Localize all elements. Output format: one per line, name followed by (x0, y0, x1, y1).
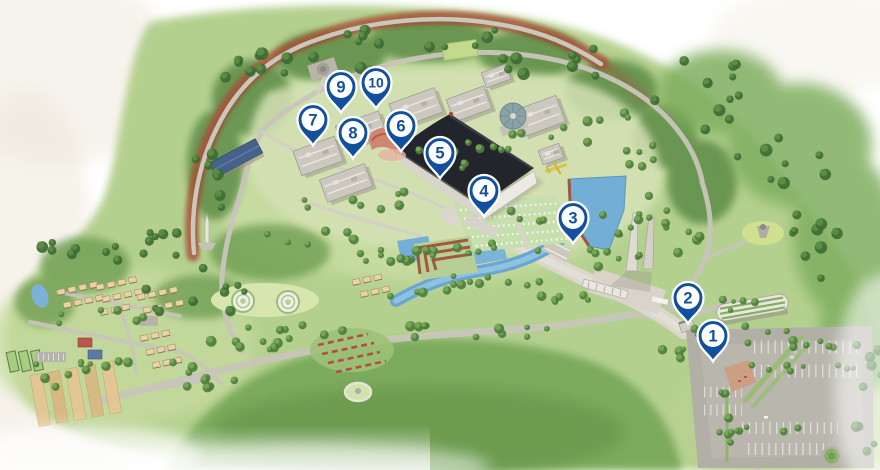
map-canvas: 10976854321 (0, 0, 880, 470)
pin-number: 6 (396, 117, 405, 135)
hill-statue (742, 221, 784, 245)
pin-number: 1 (708, 327, 717, 345)
pin-number: 8 (348, 124, 357, 142)
pin-number: 10 (368, 74, 384, 90)
pin-number: 5 (435, 144, 444, 162)
pin-number: 7 (308, 111, 317, 129)
park-map-illustration: 10976854321 (0, 0, 880, 470)
pin-number: 9 (336, 78, 345, 96)
pin-number: 2 (683, 289, 692, 307)
pin-number: 3 (568, 209, 577, 227)
pin-number: 4 (479, 182, 489, 200)
